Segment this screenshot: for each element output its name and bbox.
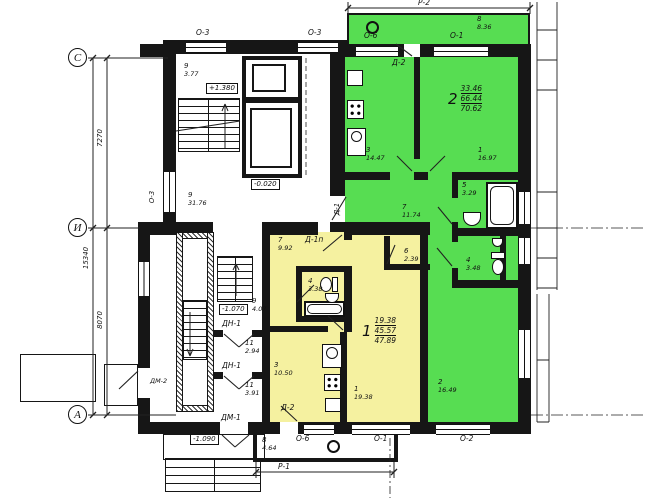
door-gap-g-bath [452,198,458,222]
stove-green-icon [347,100,364,119]
room-label-y-bath: 43.38 [308,277,322,293]
sink-yellow-bowl [326,347,338,359]
room-label-y-hall: 79.92 [278,236,292,252]
room-label-stair-landing: 93.77 [184,62,198,78]
room-num: 7 [278,236,292,244]
apt2-total-area: 66.44 [461,93,482,103]
room-area: 2.94 [245,347,259,355]
room-num: 11 [245,339,259,347]
room-label-y-living: 119.38 [354,385,373,401]
door-mark-dm2: ДМ-2 [150,377,167,385]
apt2-label: 2 33.46 66.44 70.62 [448,84,482,113]
room-label-g-balcony: 88.36 [477,15,491,31]
bathtub-green-inner [490,186,514,225]
dim-8070: 8070 [96,306,104,334]
room-area: 8.36 [477,23,491,31]
room-area: 16.97 [478,154,497,162]
door-gap-dm2 [138,368,150,398]
room-area: 4.64 [262,444,276,452]
balcony-bottom-column [327,440,340,453]
room-label-corridor: 931.76 [188,191,207,207]
porch-pad-outline [20,354,96,402]
level-entry: -0.020 [251,179,280,190]
room-area: 9.92 [278,244,292,252]
dim-7270: 7270 [96,124,104,152]
room-label-lower-landing: 94.07 [252,297,266,313]
sink-green-bowl [351,131,362,142]
floor-plan: С И А 7270 15340 8070 О-3 Д-1 Р-2 О-3 О-… [0,0,650,500]
wall-y-bath-west [296,266,302,322]
window-mark-o3-west: О-3 [148,187,156,207]
stairs-main-divider [208,98,209,152]
wc-green-bowl [492,259,504,275]
window-mark-o1-bottom: О-1 [374,435,387,443]
room-num: 9 [184,62,198,70]
door-gap-g-kitchen [390,172,414,180]
room-area: 3.48 [466,264,480,272]
window-mark-o3-b: О-3 [308,29,321,37]
dm2-landing-outline [104,364,138,406]
balcony-bottom-east [394,432,398,462]
window-mark-o6-bottom: О-6 [296,435,309,443]
door-mark-d2-bottom: Д-2 [281,404,294,412]
room-label-vestibule1: 112.94 [245,339,259,355]
wall-corridor-south-b [265,222,318,235]
room-num: 11 [245,381,259,389]
room-label-y-closet: 62.39 [404,247,418,263]
door-mark-dm1: ДМ-1 [221,414,241,422]
dn1-stub-2 [252,330,262,337]
door-gap-dm1 [220,422,248,434]
wall-y-kitchen-north [268,326,328,332]
room-area: 31.76 [188,199,207,207]
axis-i-letter: И [74,222,82,234]
apt1-living-area: 19.38 [375,316,396,325]
wall-apt1-north [344,222,430,235]
room-area: 3.77 [184,70,198,78]
axis-mark-c: С [68,48,87,67]
door-mark-dn1-upper: ДН-1 [222,320,241,328]
room-num: 3 [366,146,385,154]
door-gap-y-hall [344,240,352,266]
room-area: 2.39 [404,255,418,263]
door-gap-g-wc [452,242,458,268]
window-mark-o1-top: О-1 [450,32,463,40]
window-mark-o6-top: О-6 [364,32,377,40]
apt1-total-area: 45.57 [375,325,396,335]
window-o3-right [298,42,338,53]
door-mark-d1: Д-1 [333,198,341,220]
room-area: 3.91 [245,389,259,397]
window-o3-west [163,172,176,212]
elevator-cab-1 [252,64,286,92]
elevator-shaft-divider [244,97,300,103]
axis-a-letter: А [74,409,81,421]
level-porch: -1.090 [190,434,219,445]
door-mark-d2-top: Д-2 [392,59,405,67]
room-label-vestibule2: 113.91 [245,381,259,397]
axis-mark-i: И [68,218,87,237]
axis-c-letter: С [74,52,81,64]
room-num: 1 [354,385,373,393]
apt2-living-area: 33.46 [461,84,482,93]
room-num: 9 [188,191,207,199]
wall-g-wc-south [452,280,531,288]
dn1-stub-1 [213,330,223,337]
wc-yellow-tank [332,277,338,292]
stairs-east-divider [235,256,236,302]
room-label-g-room1: 116.97 [478,146,497,162]
door-gap-g-room1 [428,172,452,180]
room-label-g-wc: 43.48 [466,256,480,272]
room-label-y-balcony: 84.64 [262,436,276,452]
door-gap-d2-bottom [280,422,298,434]
window-east-3 [518,330,531,378]
wall-top-left-stub [140,44,165,57]
stove-yellow-icon [324,374,341,391]
window-mark-o2-bottom: О-2 [460,435,473,443]
wc-green-tank [491,252,505,259]
wall-west-lower [138,222,150,434]
room-num: 7 [402,203,421,211]
room-label-g-bath: 53.29 [462,181,476,197]
window-east-2 [518,238,531,264]
stair-shaft-wall-left [176,232,183,412]
room-num: 1 [478,146,497,154]
balcony-bottom-south [253,458,398,462]
apt1-full-area: 47.89 [375,335,396,345]
room-label-y-kitchen: 310.50 [274,361,293,377]
apt2-number: 2 [448,90,458,108]
level-lower: -1.070 [219,304,248,315]
axis-mark-a: А [68,405,87,424]
entrance-steps-divider [214,458,215,492]
room-num: 4 [466,256,480,264]
window-west-lower [138,262,150,296]
room-num: 4 [308,277,322,285]
door-mark-dn1-lower: ДН-1 [222,362,241,370]
stairs-main-flight [178,98,240,152]
apt2-areas: 33.46 66.44 70.62 [461,84,482,113]
room-num: 5 [462,181,476,189]
dn1-stub-3 [213,372,223,379]
room-num: 8 [477,15,491,23]
bathtub-yellow-inner [307,304,342,314]
room-label-g-room2: 216.49 [438,378,457,394]
room-area: 16.49 [438,386,457,394]
dim-15340: 15340 [82,242,90,274]
room-area: 19.38 [354,393,373,401]
window-mark-o3-a: О-3 [196,29,209,37]
entrance-steps [165,458,261,492]
stairs-shaft-flight [183,300,207,360]
window-east-1 [518,192,531,224]
door-mark-d1p: Д-1п [305,236,323,244]
room-num: 3 [274,361,293,369]
apt2-full-area: 70.62 [461,103,482,113]
door-gap-d2-top [404,44,420,57]
room-area: 4.07 [252,305,266,313]
room-num: 2 [438,378,457,386]
room-area: 3.38 [308,285,322,293]
room-area: 3.29 [462,189,476,197]
level-stair: +1.380 [206,83,238,94]
wall-y-closet-south [384,264,430,270]
window-o1-top [434,46,488,57]
apt1-label: 1 19.38 45.57 47.89 [362,316,396,345]
room-num: 8 [262,436,276,444]
window-o6-top [356,46,398,57]
room-area: 10.50 [274,369,293,377]
room-area: 14.47 [366,154,385,162]
wall-g-kitchen-divider [414,57,420,159]
stair-shaft-wall-right [207,232,214,412]
vent-duct [347,70,363,86]
room-label-g-kitchen: 314.47 [366,146,385,162]
window-o3-left [186,42,226,53]
cabinet-yellow [325,398,341,412]
wall-apt-divider [420,222,428,422]
room-num: 6 [404,247,418,255]
balcony-mark-p2: Р-2 [418,0,430,7]
room-area: 11.74 [402,211,421,219]
dn1-stub-4 [252,372,262,379]
elevator-cab-2 [250,108,292,168]
room-num: 9 [252,297,266,305]
apt1-areas: 19.38 45.57 47.89 [375,316,396,345]
wall-g-bath-south [452,228,531,236]
balcony-mark-p1: Р-1 [278,463,290,471]
room-label-g-hall: 711.74 [402,203,421,219]
apt1-number: 1 [362,322,372,340]
